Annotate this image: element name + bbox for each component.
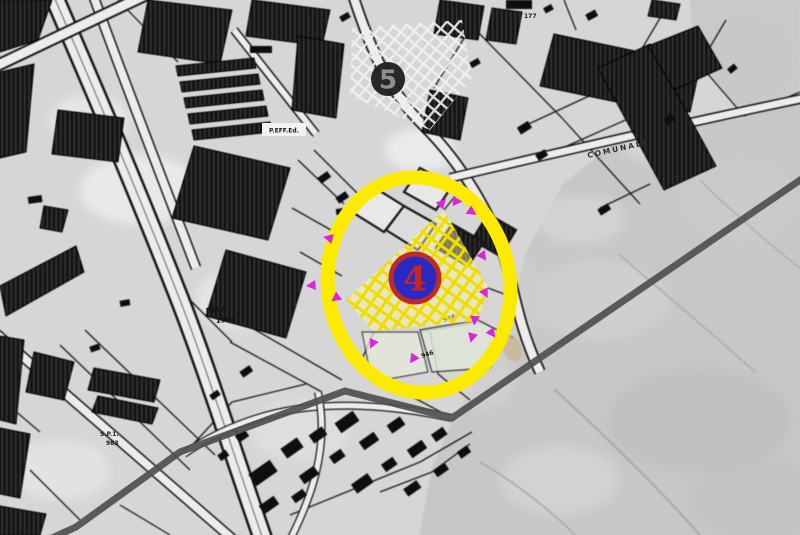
site-marker-5[interactable]: 5 <box>371 62 405 96</box>
road-sp-label: S.P.1. <box>100 431 119 438</box>
cadastral-map: P.EFF.Ed. P.LLA 1984 S.P.1. 983 COMUNALE… <box>0 0 800 535</box>
cadastral-map-screenshot: P.EFF.Ed. P.LLA 1984 S.P.1. 983 COMUNALE… <box>0 0 800 535</box>
building-box-label: P.EFF.Ed. <box>269 128 299 135</box>
marker-4-number: 4 <box>403 260 427 300</box>
road-sp-number: 983 <box>106 440 119 447</box>
parcel-number-label: 1984 <box>215 315 235 325</box>
plot-177-label: 177 <box>524 13 537 20</box>
marker-5-number: 5 <box>379 66 397 96</box>
site-marker-4[interactable]: 4 <box>389 252 442 305</box>
